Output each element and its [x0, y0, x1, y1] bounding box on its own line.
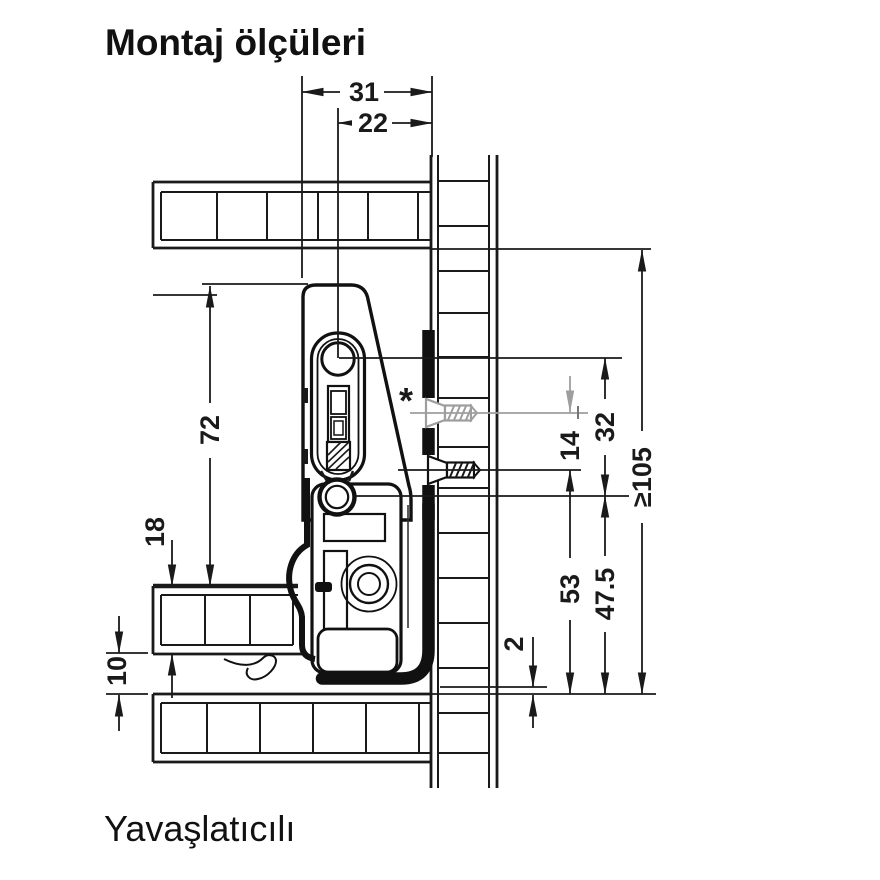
- dim-label-31: 31: [349, 77, 379, 107]
- dim-label-105: ≥105: [627, 447, 657, 507]
- dim-label-18: 18: [140, 517, 170, 547]
- dim-label-10: 10: [102, 656, 132, 686]
- variant-caption: Yavaşlatıcılı: [104, 808, 295, 850]
- dim-label-2: 2: [499, 636, 529, 651]
- height-adjustment-mechanism: [327, 386, 350, 470]
- retainer-clip: [224, 655, 276, 679]
- dim-label-53: 53: [555, 574, 585, 604]
- top-panel-section: [153, 182, 431, 248]
- drill-hole-lower: [326, 486, 348, 508]
- dim-label-32: 32: [590, 412, 620, 442]
- dim-label-47-5: 47.5: [590, 568, 620, 621]
- mounting-dimensions-diagram: Montaj ölçüleri: [0, 0, 880, 880]
- cabinet-bottom-panel: [153, 694, 431, 762]
- drawer-slide-assembly: [224, 285, 429, 679]
- front-hook: [315, 582, 332, 592]
- drawer-bottom-panel: [153, 586, 302, 654]
- dim-label-22: 22: [358, 108, 388, 138]
- technical-drawing: 31 22 72 18 10 2 14 53 32 47.5 ≥105 *: [0, 0, 880, 880]
- dim-label-72: 72: [195, 415, 225, 445]
- asterisk-marker: *: [399, 380, 413, 421]
- dim-label-14: 14: [555, 431, 585, 461]
